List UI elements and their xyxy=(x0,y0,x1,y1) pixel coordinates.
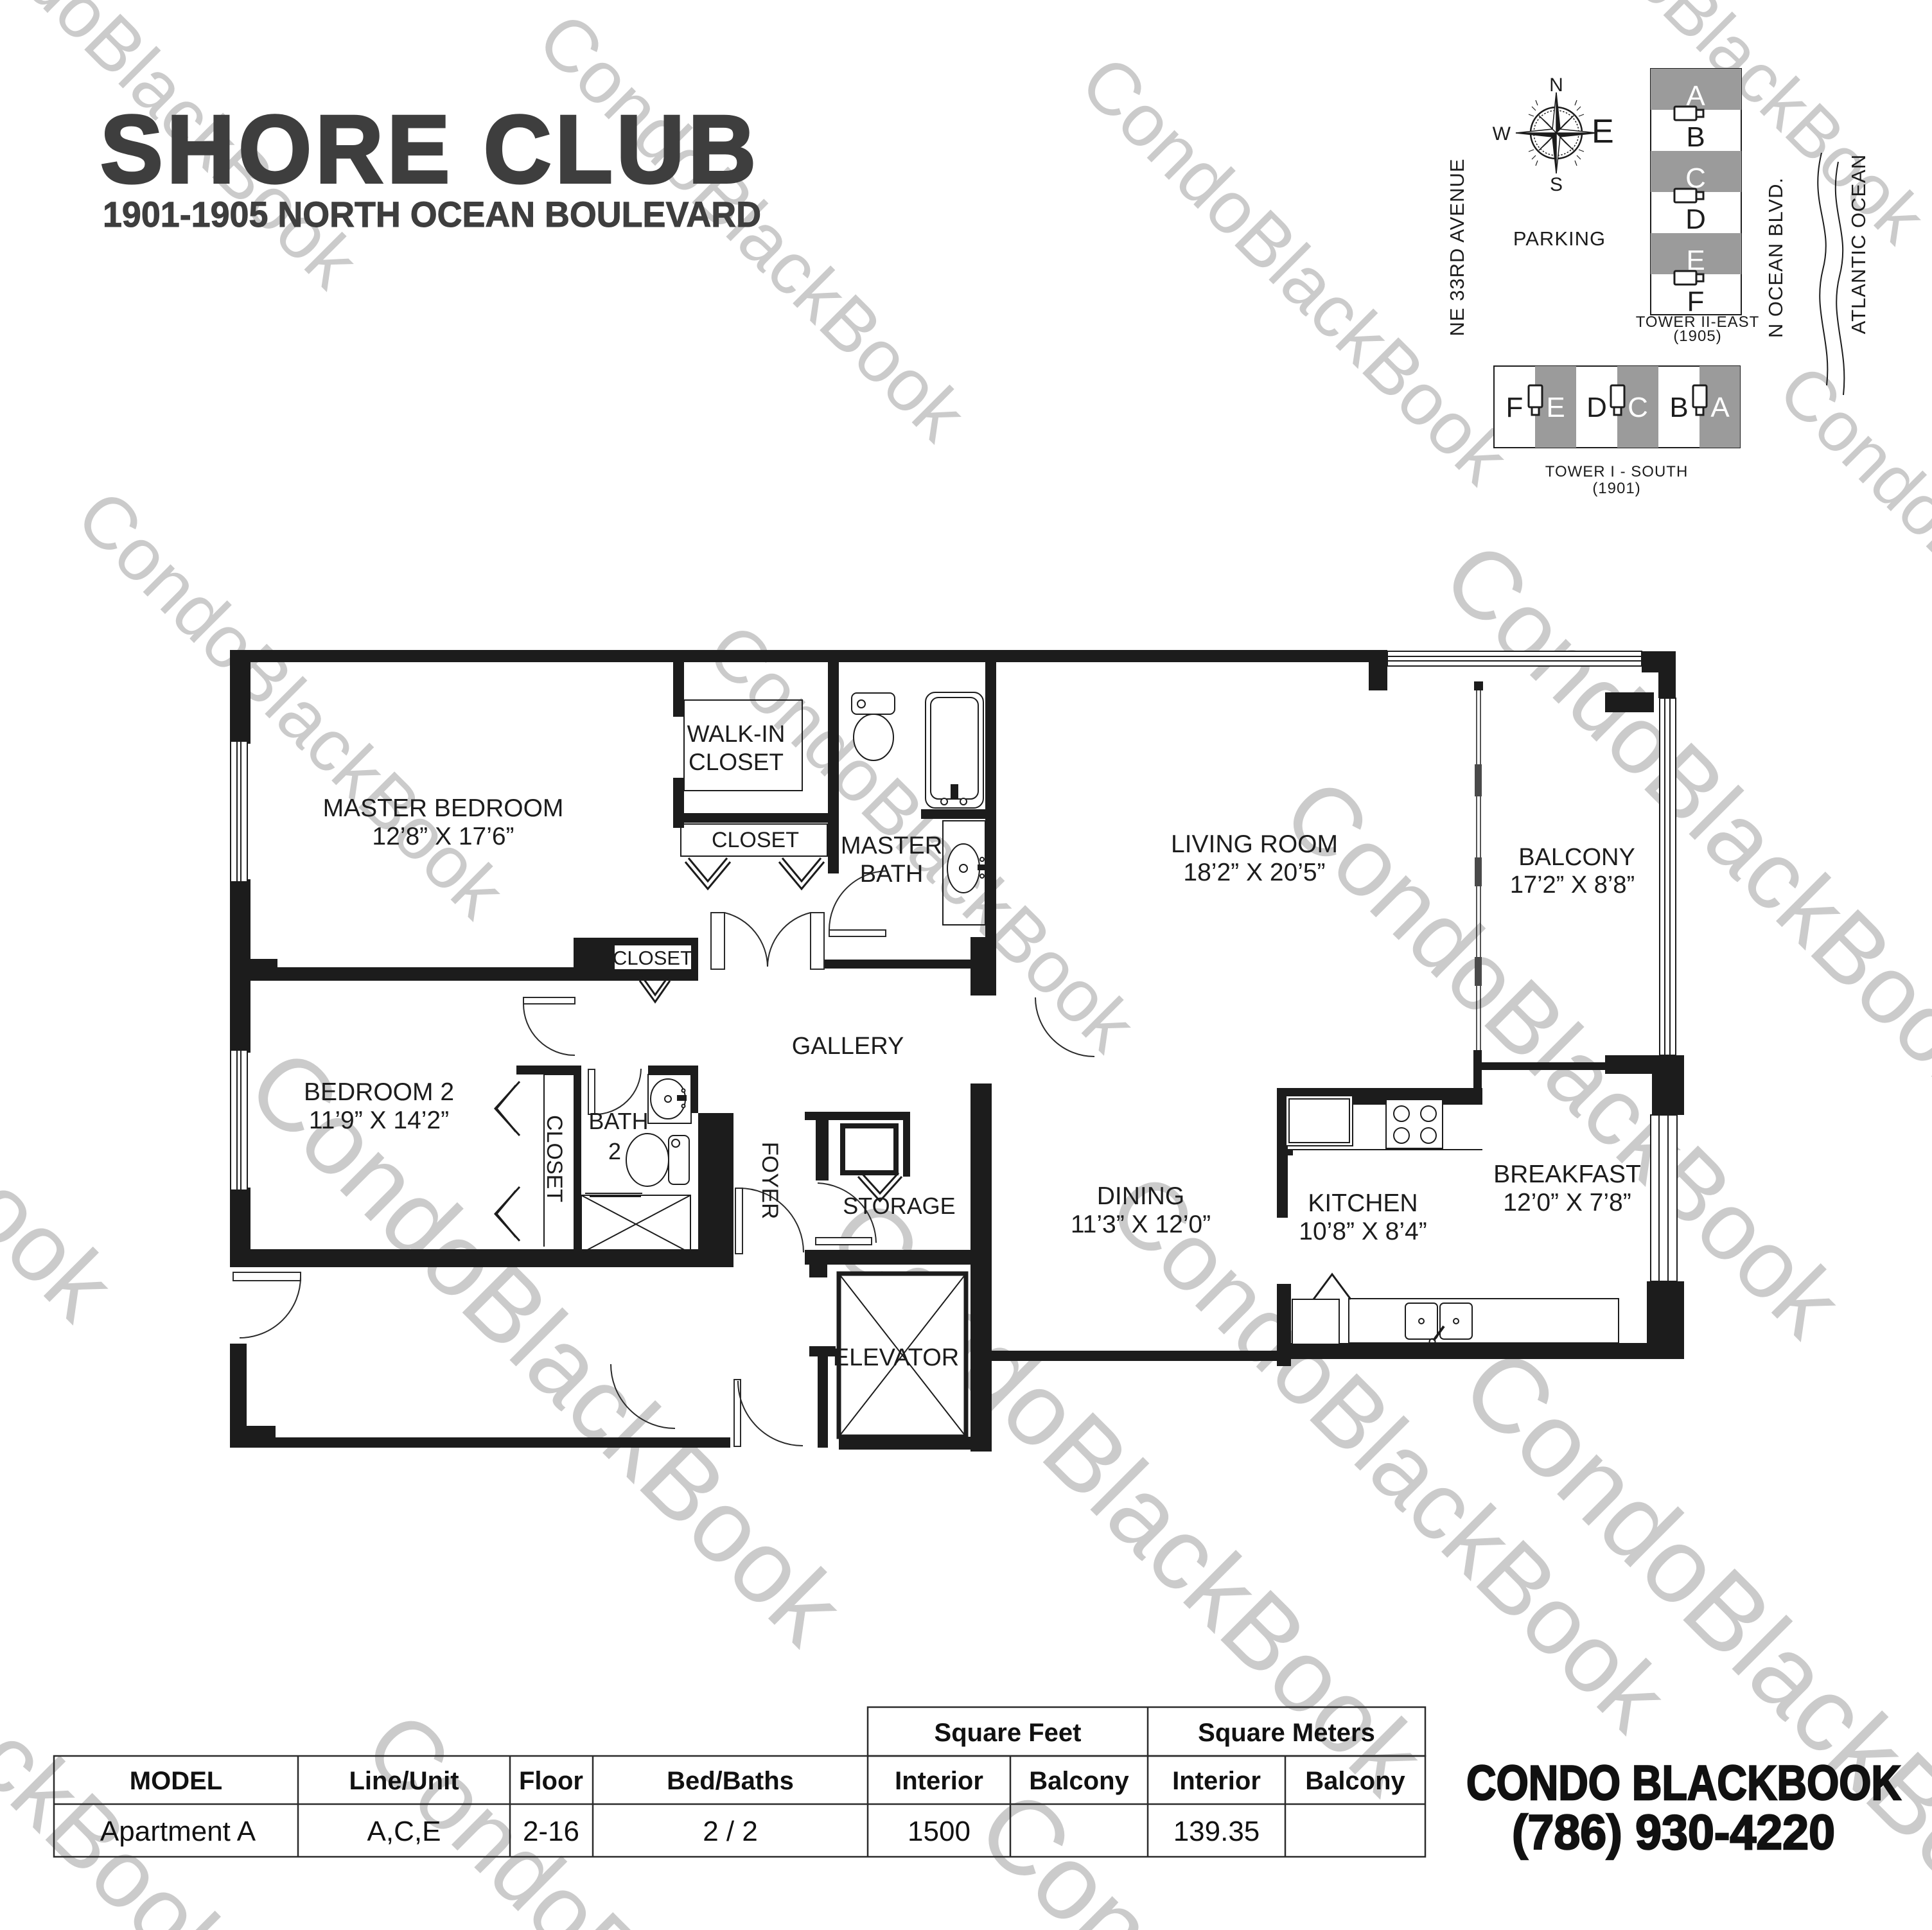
svg-text:TOWER I - SOUTH: TOWER I - SOUTH xyxy=(1545,463,1689,480)
svg-text:11’3” X 12’0”: 11’3” X 12’0” xyxy=(1071,1211,1211,1238)
svg-text:ATLANTIC OCEAN: ATLANTIC OCEAN xyxy=(1847,154,1870,334)
svg-text:E: E xyxy=(1546,392,1565,423)
svg-text:KITCHEN: KITCHEN xyxy=(1308,1189,1418,1217)
svg-text:FOYER: FOYER xyxy=(757,1142,782,1220)
svg-text:N: N xyxy=(1549,75,1563,96)
svg-text:MASTER: MASTER xyxy=(841,832,942,859)
svg-text:Line/Unit: Line/Unit xyxy=(349,1767,459,1795)
svg-text:2-16: 2-16 xyxy=(523,1816,579,1847)
svg-text:W: W xyxy=(1493,123,1511,145)
svg-text:BALCONY: BALCONY xyxy=(1518,844,1635,871)
svg-text:1901-1905 NORTH OCEAN BOULEVAR: 1901-1905 NORTH OCEAN BOULEVARD xyxy=(103,194,761,234)
svg-text:12’8” X 17’6”: 12’8” X 17’6” xyxy=(372,823,514,850)
svg-text:GALLERY: GALLERY xyxy=(792,1033,904,1060)
svg-text:BEDROOM 2: BEDROOM 2 xyxy=(304,1078,454,1106)
svg-text:B: B xyxy=(1669,392,1688,423)
svg-text:DINING: DINING xyxy=(1097,1182,1185,1210)
svg-text:BATH: BATH xyxy=(860,861,924,888)
svg-text:18’2” X 20’5”: 18’2” X 20’5” xyxy=(1183,859,1325,886)
svg-text:MASTER BEDROOM: MASTER BEDROOM xyxy=(323,794,564,822)
svg-text:17’2” X 8’8”: 17’2” X 8’8” xyxy=(1510,872,1635,899)
svg-text:D: D xyxy=(1685,204,1706,235)
svg-text:Apartment A: Apartment A xyxy=(100,1816,256,1847)
svg-text:F: F xyxy=(1687,286,1705,317)
svg-text:10’8” X 8’4”: 10’8” X 8’4” xyxy=(1299,1218,1427,1245)
svg-text:BREAKFAST: BREAKFAST xyxy=(1493,1161,1641,1188)
svg-text:STORAGE: STORAGE xyxy=(843,1193,955,1219)
svg-text:139.35: 139.35 xyxy=(1173,1816,1260,1847)
svg-text:2 / 2: 2 / 2 xyxy=(703,1816,758,1847)
svg-text:1500: 1500 xyxy=(908,1816,970,1847)
svg-text:A: A xyxy=(1710,392,1730,423)
svg-text:A,C,E: A,C,E xyxy=(367,1816,441,1847)
svg-text:(1901): (1901) xyxy=(1592,480,1640,497)
svg-text:MODEL: MODEL xyxy=(130,1767,222,1795)
svg-text:11’9” X 14’2”: 11’9” X 14’2” xyxy=(309,1107,449,1134)
svg-text:S: S xyxy=(1550,174,1563,195)
svg-text:CLOSET: CLOSET xyxy=(613,947,692,969)
svg-text:CLOSET: CLOSET xyxy=(689,749,784,775)
svg-text:ELEVATOR: ELEVATOR xyxy=(833,1344,959,1371)
svg-text:CLOSET: CLOSET xyxy=(712,828,799,852)
svg-text:E: E xyxy=(1592,113,1614,150)
svg-text:Balcony: Balcony xyxy=(1029,1767,1129,1795)
svg-text:NE 33RD AVENUE: NE 33RD AVENUE xyxy=(1446,158,1468,336)
svg-text:C: C xyxy=(1628,392,1648,423)
svg-text:N OCEAN BLVD.: N OCEAN BLVD. xyxy=(1764,177,1787,338)
svg-text:12’0” X 7’8”: 12’0” X 7’8” xyxy=(1503,1189,1631,1216)
svg-text:WALK-IN: WALK-IN xyxy=(687,721,786,747)
svg-text:2: 2 xyxy=(608,1138,621,1164)
svg-text:Bed/Baths: Bed/Baths xyxy=(667,1767,794,1795)
svg-text:CLOSET: CLOSET xyxy=(542,1115,566,1202)
svg-text:Square Feet: Square Feet xyxy=(935,1719,1082,1747)
svg-text:D: D xyxy=(1586,392,1607,423)
svg-text:Interior: Interior xyxy=(895,1767,983,1795)
svg-text:Balcony: Balcony xyxy=(1305,1767,1405,1795)
svg-text:B: B xyxy=(1686,121,1705,153)
svg-text:PARKING: PARKING xyxy=(1513,227,1606,250)
svg-text:LIVING ROOM: LIVING ROOM xyxy=(1171,830,1338,858)
svg-text:BATH: BATH xyxy=(588,1108,648,1134)
svg-text:Interior: Interior xyxy=(1172,1767,1261,1795)
svg-text:(1905): (1905) xyxy=(1673,328,1721,345)
svg-text:Square Meters: Square Meters xyxy=(1198,1719,1375,1747)
svg-text:F: F xyxy=(1506,392,1524,423)
svg-text:Floor: Floor xyxy=(519,1767,583,1795)
svg-text:CONDO BLACKBOOK: CONDO BLACKBOOK xyxy=(1466,1756,1901,1811)
svg-text:SHORE CLUB: SHORE CLUB xyxy=(100,95,760,203)
svg-text:(786) 930-4220: (786) 930-4220 xyxy=(1512,1805,1835,1860)
